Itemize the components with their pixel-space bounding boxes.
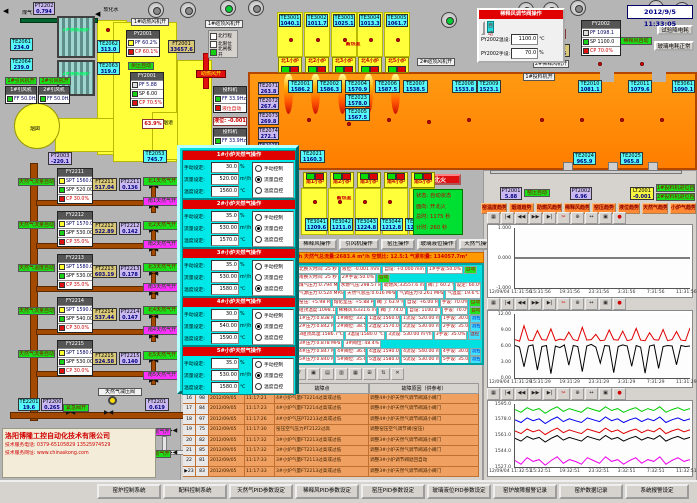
- port-北5小炉[interactable]: 北5小炉: [385, 57, 409, 73]
- table-cell: 煤气压力:0.794 MPa: [297, 282, 338, 290]
- branch4-north-valve-label: 北4天然气开: [143, 306, 181, 315]
- valve-icon: ▶◀: [149, 291, 161, 298]
- radio-row[interactable]: 流量自控: [253, 321, 293, 332]
- port-label: 南5小炉: [412, 179, 434, 187]
- instrument-TE2063: TE2063319.0: [97, 62, 120, 75]
- chart-legend-icon[interactable]: ▣: [599, 212, 612, 224]
- radio-label: 手动控制: [264, 165, 283, 172]
- chart-skip-end-icon[interactable]: ▶|: [543, 298, 556, 310]
- gas-field-input[interactable]: 35.0: [211, 358, 239, 369]
- feeder-port: [648, 162, 658, 171]
- radio-icon[interactable]: [255, 361, 262, 368]
- radio-row[interactable]: 流量自控: [253, 223, 293, 234]
- gas-field-input[interactable]: 540.00: [211, 321, 239, 332]
- port-南1小炉[interactable]: 南1小炉: [303, 172, 327, 188]
- led-icon: [132, 100, 138, 106]
- gas-field-label: 温度设定:: [184, 188, 211, 195]
- chart-cut-icon[interactable]: ✂: [557, 388, 570, 400]
- branch1-mode-label: 天然气流量自动: [18, 178, 55, 186]
- alarm-cell[interactable]: 4#小炉气压PT2213过高或过低: [275, 415, 369, 425]
- alarm-dot-icon: [387, 118, 391, 122]
- gas-field-unit: m³/h: [240, 373, 251, 378]
- x-axis-tick: 19:32:51: [559, 469, 580, 474]
- alarm-cell[interactable]: 调整4#小炉天然气调节阀减小阀门: [369, 415, 479, 425]
- controller-title: FY2213: [58, 255, 92, 262]
- chart-record-icon[interactable]: ●: [613, 388, 626, 400]
- chart-step-back-icon[interactable]: ◀◀: [515, 388, 528, 400]
- y-axis-tick: 6.00: [488, 344, 511, 349]
- controller-row-value: CP 30.0%: [66, 197, 91, 202]
- chart-step-forward-icon[interactable]: ▶▶: [529, 388, 542, 400]
- bottom-button-配料控制系统[interactable]: 配料控制系统: [163, 484, 227, 499]
- radio-icon[interactable]: [255, 225, 262, 232]
- chart-skip-end-icon[interactable]: ▶|: [543, 212, 556, 224]
- gas-field-unit: m³/h: [240, 177, 251, 182]
- instrument-value: 234.0: [11, 45, 32, 51]
- table-cell: 阀门: 63.9 %: [375, 299, 404, 307]
- radio-icon[interactable]: [255, 176, 262, 183]
- port-label: 北5小炉: [386, 58, 408, 66]
- chart-record-icon[interactable]: ●: [613, 212, 626, 224]
- table-cell: 4流设: 540.00 m³/h: [401, 348, 440, 356]
- alarm-dot-icon: [289, 38, 293, 42]
- op-button-窑压操作[interactable]: 窑压操作: [381, 239, 415, 250]
- instrument-TE3043: TE30431224.8: [355, 218, 378, 231]
- chart-skip-start-icon[interactable]: |◀: [501, 212, 514, 224]
- controller-row: SPF 540.00: [58, 314, 92, 323]
- op-button-玻璃液位操作[interactable]: 玻璃液位操作: [417, 239, 457, 250]
- controller-row: CP 30.0%: [58, 366, 92, 375]
- controller-row-value: CP 70.5%: [139, 101, 162, 106]
- trend-chart-1[interactable]: 1.0000.000-1.00012/09/04 11:31:5615:31:5…: [487, 224, 693, 298]
- series-furnace-4: [515, 436, 690, 443]
- controller-FY2214: FY2214SPT 1590.0SPF 540.00CP 30.0%: [57, 297, 93, 333]
- radio-row[interactable]: 流量自控: [253, 272, 293, 283]
- radio-icon[interactable]: [255, 285, 262, 292]
- led-icon: [59, 350, 65, 356]
- setpoint-input[interactable]: 70.0: [511, 48, 538, 59]
- checkbox-icon[interactable]: [210, 49, 217, 56]
- gas-field-input[interactable]: 530.00: [211, 272, 239, 283]
- controller-title: FY2212: [58, 212, 92, 219]
- port-indicators: [333, 66, 355, 72]
- chart-grid-icon[interactable]: ▦: [487, 388, 500, 400]
- radio-label: 手动控制: [264, 214, 283, 221]
- radio-row[interactable]: 温度自控: [253, 283, 293, 294]
- alarm-cell[interactable]: 调整4#小炉天然气调节阀减小阀门: [369, 404, 479, 414]
- instrument-value: 0.265: [42, 405, 62, 411]
- port-北3小炉[interactable]: 北3小炉: [332, 57, 356, 73]
- chart-zoom-icon[interactable]: ⊕: [571, 212, 584, 224]
- controller-row: SP 6.00: [131, 89, 163, 98]
- alarm-dot-icon: [363, 200, 367, 204]
- radio-row[interactable]: 温度自控: [253, 332, 293, 343]
- x-axis-tick: 15:32:51: [530, 469, 551, 474]
- chart-cut-icon[interactable]: ✂: [557, 298, 570, 310]
- port-北4小炉[interactable]: 北4小炉: [358, 57, 382, 73]
- series-furnace-5: [515, 457, 690, 465]
- table-cell: 1#手设:50.0%: [427, 266, 463, 274]
- table-row: 气源压力:0.524 MPa天然气总压:0.616 MPa气调压力:0.261 …: [297, 291, 482, 299]
- gas-field-input[interactable]: 1560.0: [211, 186, 239, 197]
- controller-FY2213: FY2213SPT 1580.0SPF 530.00CP 35.0%: [57, 254, 93, 290]
- gas-field-input[interactable]: 35.0: [211, 260, 239, 271]
- table-row: 2#压力:0.842 MPa2#阀位: 38.5%2温设:1570.0 ℃2流设…: [297, 323, 482, 331]
- alarm-cell[interactable]: 窑压空气压力PT2122过高: [275, 425, 369, 435]
- controller-row-value: SPT 1560.0: [66, 179, 92, 184]
- alarm-cell[interactable]: 4#小炉气量FT2214过高或过低: [275, 404, 369, 414]
- radio-label: 流量自控: [264, 176, 283, 183]
- x-axis-tick: 3:31:29: [618, 380, 636, 385]
- chart-step-back-icon[interactable]: ◀◀: [515, 298, 528, 310]
- alarm-cell: 2012/09/05: [209, 446, 245, 456]
- radio-icon[interactable]: [255, 274, 262, 281]
- port-indicators: [306, 66, 328, 72]
- controller-FY2002: FY2002PF 1098.1SP 1100.0CP 70.0%: [581, 20, 621, 56]
- alarm-cell: 83: [196, 467, 209, 477]
- alarm-dot-icon: [388, 200, 392, 204]
- table-cell: 1流设: 520.00 m³/h: [401, 315, 440, 323]
- alarm-list-icon[interactable]: ▤: [321, 368, 334, 380]
- op-button-稀释风操作[interactable]: 稀释风操作: [297, 239, 337, 250]
- boiler1-label: 1#余热锅炉: [59, 28, 93, 35]
- fan-icon: [248, 0, 264, 16]
- valve-icon: ▶◀: [104, 410, 116, 417]
- radio-icon[interactable]: [255, 334, 262, 341]
- setpoint-input[interactable]: 1100.0: [511, 34, 538, 45]
- port-label: 北1小炉: [279, 58, 301, 66]
- gas-field-row: 温度设定:1580.0℃: [184, 382, 245, 393]
- controller-row: SPF 530.00: [58, 271, 92, 280]
- led-icon: [583, 30, 589, 36]
- table-cell: 稀释风:6331.6 m³/h: [337, 307, 378, 315]
- chart-zoom-icon[interactable]: ⊕: [571, 298, 584, 310]
- gas-field-label: 流量设定:: [184, 176, 211, 183]
- radio-row[interactable]: 流量自控: [253, 174, 293, 185]
- valve-icon: ▶◀: [149, 334, 161, 341]
- gas-field-label: 温度设定:: [184, 286, 211, 293]
- chart-cut-icon[interactable]: ✂: [557, 212, 570, 224]
- alarm-dot-icon: [316, 38, 320, 42]
- checkbox-icon[interactable]: [210, 41, 217, 48]
- alarm-cell: 11:17:33: [245, 456, 275, 466]
- series-setpoint: [515, 326, 690, 342]
- instrument-value: 269.8: [259, 119, 278, 125]
- x-axis-tick: 23:32:51: [589, 469, 610, 474]
- manual-mode-button[interactable]: PY2002手动: [481, 21, 485, 35]
- chart-grid-icon[interactable]: ▦: [487, 212, 500, 224]
- gas-field-input[interactable]: 520.00: [211, 174, 239, 185]
- alarm-cell: 11:17:26: [245, 415, 275, 425]
- bottom-button-窑炉控制系统[interactable]: 窑炉控制系统: [97, 484, 161, 499]
- instrument-TE2064: TE2064239.0: [10, 58, 33, 71]
- gas-field-label: 手动设定:: [184, 311, 211, 318]
- company-name: 洛阳博隆工控自动化技术有限公司: [5, 431, 153, 442]
- alarm-cell[interactable]: 3#小炉气量FT2213过高或过低: [275, 446, 369, 456]
- table-cell: 流控: [470, 356, 481, 364]
- branch1-north-valve-label: 北1天然气开: [143, 177, 181, 186]
- alarm-add-icon[interactable]: ⊞: [363, 368, 376, 380]
- bottom-button-系统报警设定[interactable]: 系统报警设定: [625, 484, 689, 499]
- y-axis-tick: 9.00: [488, 328, 511, 333]
- alarm-cell[interactable]: 4#小炉气量FT2214过高或过低: [275, 394, 369, 404]
- gas-field-input[interactable]: 1590.0: [211, 333, 239, 344]
- alarm-grid-icon[interactable]: ▦: [349, 368, 362, 380]
- port-北1小炉[interactable]: 北1小炉: [278, 57, 302, 73]
- controller-title: 2#引风机: [39, 87, 69, 94]
- series-furnace-2: [515, 417, 690, 424]
- radio-icon[interactable]: [255, 236, 262, 243]
- alarm-sort-icon[interactable]: ⇅: [377, 368, 390, 380]
- checkbox-icon[interactable]: [210, 33, 217, 40]
- instrument-value: 263.8: [259, 89, 278, 95]
- alarm-cell[interactable]: 3#小炉气量FT2213过高或过低: [275, 436, 369, 446]
- chart-legend-icon[interactable]: ▣: [599, 298, 612, 310]
- datetime-display: 2012/9/5 11:33:05: [627, 5, 693, 19]
- controller-row: PF 60.2%: [127, 38, 159, 47]
- gas-field-input[interactable]: 30.0: [211, 309, 239, 320]
- gas-field-unit: %: [240, 263, 245, 268]
- radio-row[interactable]: 手动控制: [253, 163, 293, 174]
- radio-icon[interactable]: [255, 372, 262, 379]
- bottom-button-天然气PID参数设定[interactable]: 天然气PID参数设定: [229, 484, 293, 499]
- bottom-button-窑炉数据记录[interactable]: 窑炉数据记录: [559, 484, 623, 499]
- branch5-mode-label: 天然气流量自动: [18, 350, 55, 358]
- alarm-cell[interactable]: 调整3#小炉天然气调节阀减小阀门: [369, 446, 479, 456]
- alarm-close-icon[interactable]: ✕: [391, 368, 404, 380]
- branch3-south-valve-label: 南3天然气开: [143, 283, 181, 292]
- table-cell: 3流设: 530.00 m³/h: [386, 332, 433, 340]
- alarm-cell[interactable]: 调整3#小炉天然气调节阀减小阀门: [369, 436, 479, 446]
- boiler1-shape: [57, 16, 95, 58]
- chart-step-forward-icon[interactable]: ▶▶: [529, 212, 542, 224]
- radio-icon[interactable]: [255, 214, 262, 221]
- gas-field-label: 流量设定:: [184, 225, 211, 232]
- table-cell: 2#手设:50.0%: [340, 274, 376, 282]
- process-data-table: 北换火时间: 25 秒液位: -0.001 mm自设: +0.000 mm1#手…: [293, 263, 484, 365]
- gas-panel-title: 4#小炉天然气操作: [183, 298, 295, 307]
- chart-skip-start-icon[interactable]: |◀: [501, 388, 514, 400]
- controller-row: SPT 1590.0: [58, 305, 92, 314]
- alarm-cell: 18: [183, 415, 196, 425]
- instrument-PT2212: PT22120.142: [119, 222, 141, 235]
- feeder1-auto-label: 1#投料机进位自动: [656, 184, 695, 192]
- x-axis-tick: 7:31:56: [647, 290, 665, 295]
- instrument-FT2215: FT2215524.58: [92, 352, 117, 365]
- gas-field-unit: ℃: [240, 385, 245, 390]
- table-row: 1#压力:0.838 MPa1#阀位: 33.2%1温设:1560.0 ℃1流设…: [297, 315, 482, 323]
- y-axis-tick: 1595.0: [488, 402, 511, 407]
- gas-field-input[interactable]: 1580.0: [211, 382, 239, 393]
- chart-span-icon[interactable]: ↔: [585, 212, 598, 224]
- glass-power-normal-button[interactable]: 玻璃电耗正常: [654, 41, 694, 51]
- chart-legend-icon[interactable]: ▣: [599, 388, 612, 400]
- flow-arrow-icon: ◀: [3, 8, 11, 16]
- series-furnace-3: [515, 428, 690, 435]
- table-row: 煤气压力:0.794 MPa水燃气压:298.57 kPa助燃风:33557.6…: [297, 282, 482, 290]
- radio-row[interactable]: 手动控制: [253, 261, 293, 272]
- led-icon: [128, 40, 134, 46]
- led-icon: [59, 187, 65, 193]
- table-cell: 2温设:1570.0 ℃: [367, 323, 400, 331]
- alarm-cell[interactable]: 调整窑压空气调节阀(窑压): [369, 425, 479, 435]
- fan-hub-icon: [225, 5, 233, 13]
- led-icon: [59, 359, 65, 365]
- chart-record-icon[interactable]: ●: [613, 298, 626, 310]
- x-axis-tick: 12/09/04 11:31:56: [489, 290, 532, 295]
- radio-label: 流量自控: [264, 274, 283, 281]
- series-furnace-1: [515, 407, 690, 414]
- alarm-cell: 82: [196, 436, 209, 446]
- op-button-引风机操作[interactable]: 引风机操作: [339, 239, 379, 250]
- gas-panel-5: 5#小炉天然气操作手动设定:35.0%流量设定:530.00m³/h温度设定:1…: [182, 346, 296, 395]
- table-cell: 自设: 1100.0 ℃: [407, 307, 440, 315]
- radio-row[interactable]: 手动控制: [253, 212, 293, 223]
- status-line: 计时: 260 秒: [416, 223, 460, 234]
- chart-span-icon[interactable]: ↔: [585, 388, 598, 400]
- radio-row[interactable]: 手动控制: [253, 359, 293, 370]
- branch3-mode-label: 天然气温度自动: [18, 264, 55, 272]
- alarm-cell[interactable]: 3#小炉气量FT2213过高或过低: [275, 467, 369, 477]
- instrument-TE2004: TE20041570.9: [345, 80, 370, 93]
- instrument-TE2053: TE2053745.7: [143, 150, 167, 163]
- setpoint-label: PY2002温设:: [481, 36, 510, 43]
- alarm-cell[interactable]: 调整3#小炉调节阀退回自动: [369, 456, 479, 466]
- gas-field-input[interactable]: 35.0: [211, 211, 239, 222]
- radio-label: 温度自控: [264, 285, 283, 292]
- gas-field-input[interactable]: 30.0: [211, 162, 239, 173]
- table-cell: 4温设:1590.0 ℃: [367, 348, 400, 356]
- gas-field-input[interactable]: 530.00: [211, 223, 239, 234]
- radio-row[interactable]: 温度自控: [253, 381, 293, 392]
- checkbox-row[interactable]: 北行程: [210, 32, 236, 40]
- fan-hub-icon: [253, 5, 261, 13]
- table-cell: 阀门: 60.2 %: [426, 282, 454, 290]
- port-南2小炉[interactable]: 南2小炉: [330, 172, 354, 188]
- id-fan1-on-label: 1#引风机开: [5, 77, 37, 85]
- radio-label: 流量自控: [264, 323, 283, 330]
- chart-step-forward-icon[interactable]: ▶▶: [529, 298, 542, 310]
- instrument-value: 1212.8: [381, 225, 402, 231]
- gas-field-unit: m³/h: [240, 324, 251, 329]
- dilution-auto-label: 稀释风自动: [620, 37, 652, 45]
- instrument-FT2211: FT2211517.04: [92, 178, 117, 191]
- radio-row[interactable]: 温度自控: [253, 185, 293, 196]
- radio-row[interactable]: 手动控制: [253, 310, 293, 321]
- led-icon: [215, 138, 221, 144]
- gas-field-label: 手动设定:: [184, 360, 211, 367]
- radio-icon[interactable]: [255, 383, 262, 390]
- gas-field-input[interactable]: 1570.0: [211, 235, 239, 246]
- checkbox-row[interactable]: 北闸板开: [210, 48, 236, 56]
- chart-step-back-icon[interactable]: ◀◀: [515, 212, 528, 224]
- led-icon: [59, 264, 65, 270]
- alarm-cell[interactable]: 调整3#小炉天然气调节阀减小阀门: [369, 467, 479, 477]
- bottom-button-窑压PID参数设定[interactable]: 窑压PID参数设定: [361, 484, 425, 499]
- port-南3小炉[interactable]: 南3小炉: [357, 172, 381, 188]
- bottom-button-玻璃液位PID参数设定[interactable]: 玻璃液位PID参数设定: [427, 484, 491, 499]
- table-cell: 5手设: 35.0%: [441, 356, 469, 364]
- gas-field-unit: %: [240, 165, 245, 170]
- radio-icon[interactable]: [255, 323, 262, 330]
- led-icon: [59, 307, 65, 313]
- port-南4小炉[interactable]: 南4小炉: [384, 172, 408, 188]
- controller-row: CP 70.5%: [131, 98, 163, 107]
- instrument-PT2002: PT20026.96: [570, 187, 592, 200]
- table-cell: 液位: -0.001 mm: [340, 266, 381, 274]
- branch5-north-valve-label: 北5天然气开: [143, 351, 181, 360]
- alarm-cell[interactable]: 调整4#小炉天然气调节阀减小阀门: [369, 394, 479, 404]
- radio-icon[interactable]: [255, 263, 262, 270]
- x-axis-tick: 11:31:56: [676, 290, 697, 295]
- instrument-value: 1224.8: [356, 225, 377, 231]
- bottom-button-窑炉故障报警记录[interactable]: 窑炉故障报警记录: [493, 484, 557, 499]
- radio-icon[interactable]: [255, 187, 262, 194]
- radio-row[interactable]: 温度自控: [253, 234, 293, 245]
- gas-panel-1: 1#小炉天然气操作手动设定:30.0%流量设定:520.00m³/h温度设定:1…: [182, 150, 296, 199]
- company-phone: 技术服务电话: 0379-65105829 13525974529: [5, 442, 153, 450]
- alarm-cell: 84: [196, 404, 209, 414]
- chart-zoom-icon[interactable]: ⊕: [571, 388, 584, 400]
- alarm-cell: 21: [183, 446, 196, 456]
- radio-label: 流量自控: [264, 372, 283, 379]
- chart-skip-end-icon[interactable]: ▶|: [543, 388, 556, 400]
- radio-icon[interactable]: [255, 165, 262, 172]
- chart-grid-icon[interactable]: ▦: [487, 298, 500, 310]
- chart-span-icon[interactable]: ↔: [585, 298, 598, 310]
- controller-row-value: FF 50.0Hz: [14, 97, 36, 102]
- table-cell: 手设: 70.0%: [442, 307, 469, 315]
- gas-field-input[interactable]: 530.00: [211, 370, 239, 381]
- alarm-view-icon[interactable]: ▣: [307, 368, 320, 380]
- alarm-dot-icon: [396, 38, 400, 42]
- combustion-air-on-label: 助燃风开: [196, 70, 226, 78]
- branch3-north-valve-label: 北3天然气开: [143, 263, 181, 272]
- gas-field-row: 流量设定:530.00m³/h: [184, 272, 251, 283]
- radio-row[interactable]: 流量自控: [253, 370, 293, 381]
- alarm-cell[interactable]: 3#小炉气量FT2113过高或过低: [275, 456, 369, 466]
- gas-panel-title: 5#小炉天然气操作: [183, 347, 295, 356]
- controller-投料机FY2012: 投料机FY2012FF 33.9Hz: [213, 128, 247, 146]
- controller-row-value: SP 6.00: [139, 92, 162, 97]
- radio-icon[interactable]: [255, 312, 262, 319]
- table-cell: 阀门: 74.0 %: [378, 307, 406, 315]
- gas-pressure-reducer-label: 天然气减压阀: [98, 388, 142, 396]
- alarm-filter-icon[interactable]: ▥: [335, 368, 348, 380]
- bottom-button-稀释风PID参数设定[interactable]: 稀释风PID参数设定: [295, 484, 359, 499]
- controller-row: CP 35.0%: [58, 237, 92, 246]
- controller-row-value: CP 70.0%: [590, 49, 619, 54]
- trend-chart-3[interactable]: 1595.01578.01561.01544.01527.012/09/04 1…: [487, 400, 693, 477]
- controller-row-value: SPF 540.00: [66, 317, 92, 322]
- firing-status-panel: 状态: 自动状态面向: 开北火总时: 1175 秒计时: 260 秒: [413, 189, 463, 235]
- controller-row-value: PF 1098.1: [590, 31, 619, 36]
- trend-chart-2[interactable]: 12.009.006.003.000.0012/09/04 11:31:2915…: [487, 310, 693, 388]
- pump-icon: [108, 396, 117, 405]
- table-cell: 4#阀位: 36.6%: [335, 348, 366, 356]
- table-cell: 气调压力:0.261 MPa: [397, 291, 444, 299]
- alarm-cell: 2012/09/05: [209, 415, 245, 425]
- alarm-header-cell: 故障原因（供参考）: [369, 383, 479, 394]
- led-icon: [583, 39, 589, 45]
- led-icon: [132, 82, 138, 88]
- chart-skip-start-icon[interactable]: |◀: [501, 298, 514, 310]
- instrument-PT2200: PT22000.265: [41, 398, 63, 411]
- port-北2小炉[interactable]: 北2小炉: [305, 57, 329, 73]
- controller-row: FF 50.0Hz: [6, 94, 36, 103]
- gas-field-input[interactable]: 1580.0: [211, 284, 239, 295]
- port-南5小炉[interactable]: 南5小炉: [411, 172, 435, 188]
